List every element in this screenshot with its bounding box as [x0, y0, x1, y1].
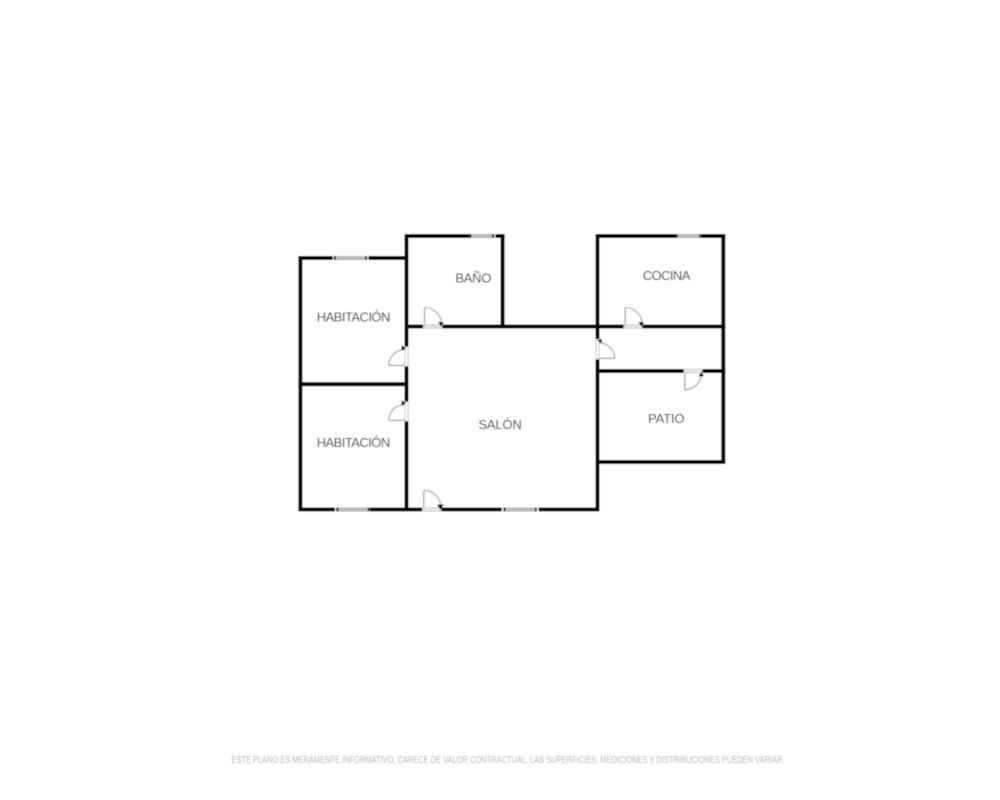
svg-text:HABITACIÓN: HABITACIÓN — [317, 310, 390, 325]
svg-text:COCINA: COCINA — [643, 268, 691, 283]
svg-text:HABITACIÓN: HABITACIÓN — [317, 435, 390, 450]
svg-text:PATIO: PATIO — [648, 411, 684, 426]
svg-text:ESTE PLANO ES MERAMENTE INFORM: ESTE PLANO ES MERAMENTE INFORMATIVO, CAR… — [231, 755, 784, 766]
svg-text:BAÑO: BAÑO — [455, 270, 491, 285]
svg-text:SALÓN: SALÓN — [478, 417, 521, 432]
